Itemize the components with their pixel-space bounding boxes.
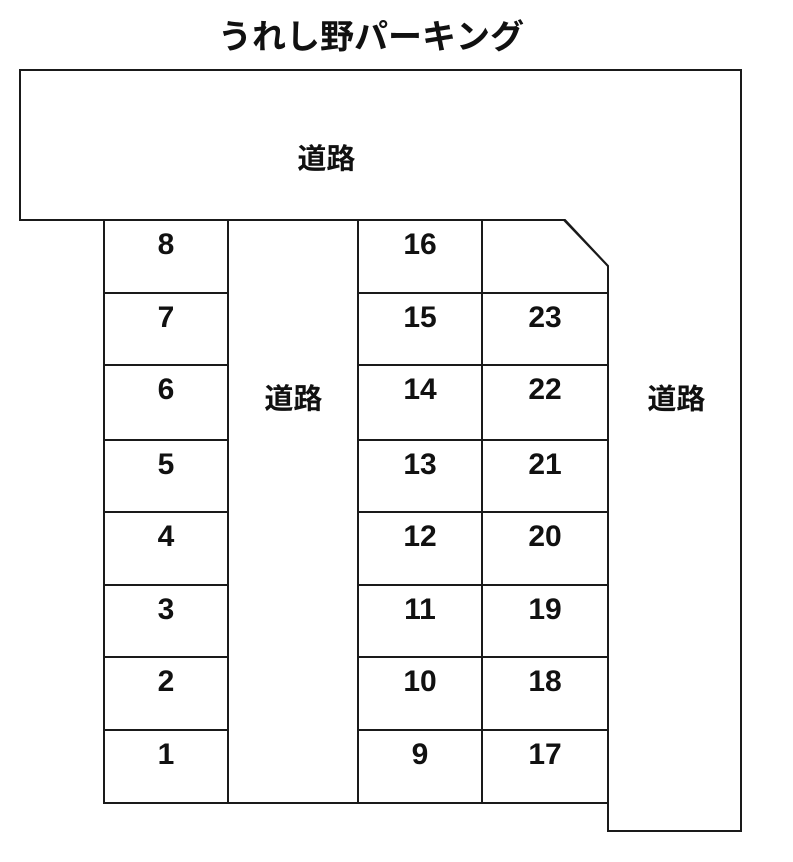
svg-text:21: 21 bbox=[528, 448, 561, 481]
svg-text:2: 2 bbox=[158, 665, 175, 698]
svg-text:6: 6 bbox=[158, 373, 175, 406]
svg-text:7: 7 bbox=[158, 301, 175, 334]
svg-text:5: 5 bbox=[158, 448, 175, 481]
svg-text:9: 9 bbox=[412, 738, 429, 771]
svg-text:11: 11 bbox=[404, 593, 436, 626]
svg-text:17: 17 bbox=[528, 738, 561, 771]
svg-text:15: 15 bbox=[403, 301, 436, 334]
svg-text:13: 13 bbox=[403, 448, 436, 481]
svg-text:4: 4 bbox=[158, 520, 175, 553]
svg-text:23: 23 bbox=[528, 301, 561, 334]
svg-text:16: 16 bbox=[403, 228, 436, 261]
svg-text:3: 3 bbox=[158, 593, 175, 626]
svg-text:20: 20 bbox=[528, 520, 561, 553]
svg-text:10: 10 bbox=[403, 665, 436, 698]
svg-text:19: 19 bbox=[528, 593, 561, 626]
svg-text:14: 14 bbox=[403, 373, 437, 406]
svg-text:22: 22 bbox=[528, 373, 561, 406]
svg-text:8: 8 bbox=[158, 228, 175, 261]
svg-text:12: 12 bbox=[403, 520, 436, 553]
svg-text:1: 1 bbox=[158, 738, 175, 771]
svg-text:18: 18 bbox=[528, 665, 561, 698]
